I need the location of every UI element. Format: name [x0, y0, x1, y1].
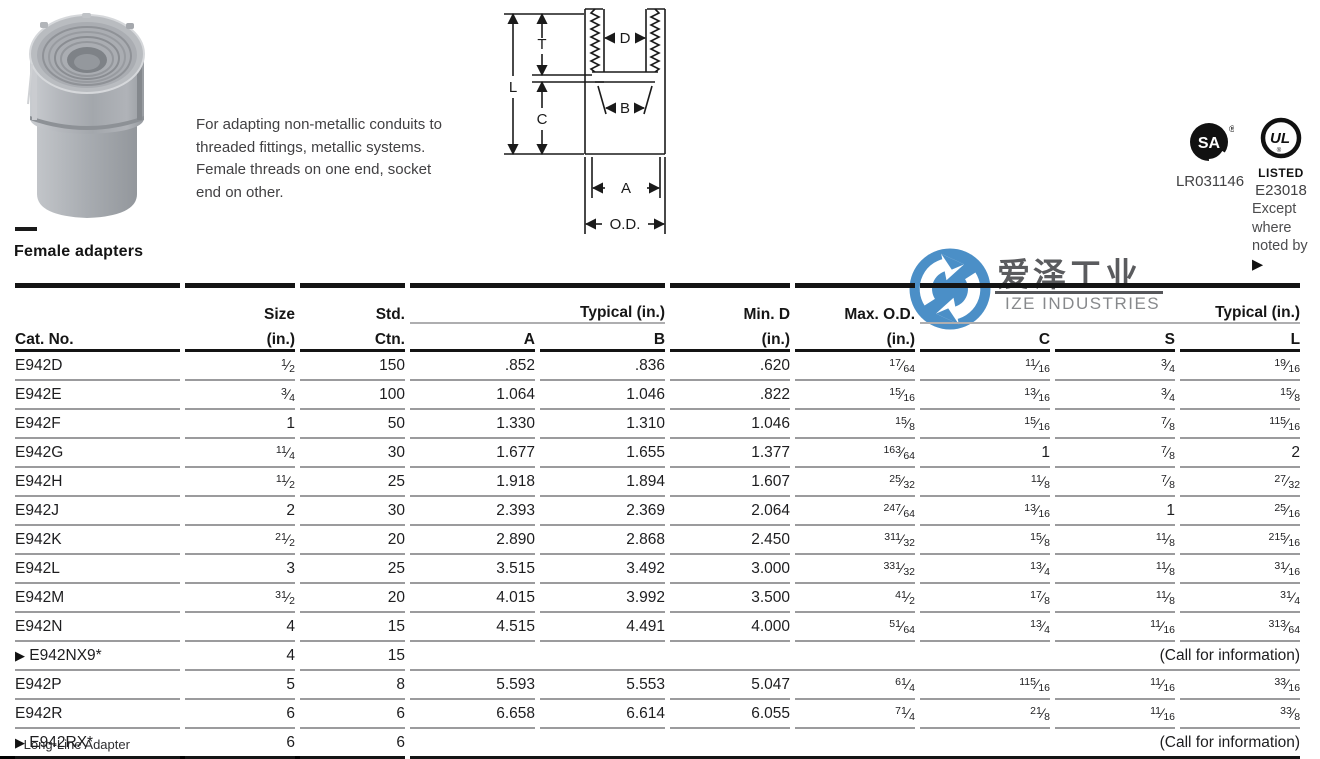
- table-cell: 2: [1180, 439, 1300, 468]
- table-cell: 3⁄4: [185, 381, 295, 410]
- table-cell: 31⁄4: [1180, 584, 1300, 613]
- header-size-unit: (in.): [185, 324, 295, 352]
- svg-text:®: ®: [1229, 124, 1234, 134]
- table-cell: 1.064: [410, 381, 535, 410]
- table-cell: 311⁄32: [795, 526, 915, 555]
- dimension-diagram: T L C D B A O.D.: [492, 2, 702, 259]
- table-row: E942F1501.3301.3101.04615⁄815⁄167⁄8115⁄1…: [15, 410, 1300, 439]
- long-line-marker-icon: ▶: [15, 648, 25, 663]
- table-cell: 6: [300, 729, 405, 759]
- ul-code: E23018: [1252, 182, 1310, 199]
- header-max-od-unit: (in.): [795, 324, 915, 352]
- table-cell: E942F: [15, 410, 180, 439]
- table-cell: 5.593: [410, 671, 535, 700]
- table-cell: E942E: [15, 381, 180, 410]
- table-cell: 71⁄4: [795, 700, 915, 729]
- table-cell: 3.500: [670, 584, 790, 613]
- table-cell: 163⁄64: [795, 439, 915, 468]
- table-cell: 19⁄16: [1180, 352, 1300, 381]
- table-cell: 15⁄8: [795, 410, 915, 439]
- ul-listed-label: LISTED: [1252, 166, 1310, 180]
- csa-icon: SA ®: [1186, 118, 1234, 166]
- header-size-top: Size: [185, 283, 295, 324]
- table-row: E942L3253.5153.4923.000331⁄3213⁄411⁄831⁄…: [15, 555, 1300, 584]
- table-cell: 2.890: [410, 526, 535, 555]
- table-cell: 41⁄2: [795, 584, 915, 613]
- table-cell: E942K: [15, 526, 180, 555]
- table-cell: 27⁄32: [1180, 468, 1300, 497]
- svg-text:UL: UL: [1270, 130, 1290, 147]
- svg-text:SA: SA: [1198, 135, 1221, 152]
- table-cell: 1.677: [410, 439, 535, 468]
- table-cell: 6.658: [410, 700, 535, 729]
- table-cell: 1.607: [670, 468, 790, 497]
- table-cell: 4.000: [670, 613, 790, 642]
- table-cell: 11⁄8: [1055, 584, 1175, 613]
- table-cell: .620: [670, 352, 790, 381]
- table-row: E942R666.6586.6146.05571⁄421⁄811⁄1633⁄8: [15, 700, 1300, 729]
- spec-table-body: E942D1⁄2150.852.836.62017⁄6411⁄163⁄419⁄1…: [15, 352, 1300, 759]
- table-cell: 3.000: [670, 555, 790, 584]
- csa-certification: SA ® LR031146: [1164, 118, 1256, 190]
- table-cell: E942D: [15, 352, 180, 381]
- table-row: E942P585.5935.5535.04761⁄4115⁄1611⁄1633⁄…: [15, 671, 1300, 700]
- table-cell: E942G: [15, 439, 180, 468]
- table-cell: 8: [300, 671, 405, 700]
- diagram-label-b: B: [620, 100, 630, 117]
- table-row: E942D1⁄2150.852.836.62017⁄6411⁄163⁄419⁄1…: [15, 352, 1300, 381]
- ul-certification: UL ® LISTED E23018: [1252, 116, 1310, 199]
- csa-code: LR031146: [1164, 173, 1256, 190]
- table-cell: 4: [185, 642, 295, 671]
- spec-table: Size Std. Typical (in.) Min. D Max. O.D.…: [10, 283, 1305, 759]
- long-line-marker-icon: ▶: [15, 735, 25, 750]
- table-cell: 5.553: [540, 671, 665, 700]
- table-cell: 1.330: [410, 410, 535, 439]
- table-cell: E942L: [15, 555, 180, 584]
- table-cell: 11⁄16: [920, 352, 1050, 381]
- table-row: ▶ E942NX9*415(Call for information): [15, 642, 1300, 671]
- table-cell: 30: [300, 439, 405, 468]
- diagram-label-d: D: [620, 30, 631, 47]
- table-cell: 15⁄8: [920, 526, 1050, 555]
- table-cell: 2.868: [540, 526, 665, 555]
- table-cell: 30: [300, 497, 405, 526]
- table-cell: 115⁄16: [920, 671, 1050, 700]
- table-cell: 11⁄16: [1055, 613, 1175, 642]
- table-cell: 1.046: [670, 410, 790, 439]
- table-cell: .822: [670, 381, 790, 410]
- diagram-label-od: O.D.: [610, 216, 641, 233]
- table-cell: 21⁄8: [920, 700, 1050, 729]
- table-cell: 4.015: [410, 584, 535, 613]
- table-cell: 11⁄16: [1055, 700, 1175, 729]
- table-cell: 2: [185, 497, 295, 526]
- table-cell: 1.918: [410, 468, 535, 497]
- table-row: E942E3⁄41001.0641.046.82215⁄1613⁄163⁄415…: [15, 381, 1300, 410]
- table-cell: 25: [300, 468, 405, 497]
- table-cell: E942R: [15, 700, 180, 729]
- table-cell: 1.894: [540, 468, 665, 497]
- header-cat-no: Cat. No.: [15, 324, 180, 352]
- table-cell: 20: [300, 584, 405, 613]
- table-cell: 1: [920, 439, 1050, 468]
- table-row: E942G11⁄4301.6771.6551.377163⁄6417⁄82: [15, 439, 1300, 468]
- table-row: ▶ E942RX*66(Call for information): [15, 729, 1300, 759]
- table-cell: 25⁄32: [795, 468, 915, 497]
- table-cell: 4.515: [410, 613, 535, 642]
- table-cell: 6.614: [540, 700, 665, 729]
- table-cell: 313⁄64: [1180, 613, 1300, 642]
- table-row: E942K21⁄2202.8902.8682.450311⁄3215⁄811⁄8…: [15, 526, 1300, 555]
- diagram-label-t: T: [537, 36, 546, 53]
- table-cell: 5: [185, 671, 295, 700]
- table-cell: 11⁄2: [185, 468, 295, 497]
- table-cell: 3⁄4: [1055, 352, 1175, 381]
- page-title: Female adapters: [14, 243, 143, 261]
- table-cell: .836: [540, 352, 665, 381]
- table-cell: 20: [300, 526, 405, 555]
- table-cell: 1.655: [540, 439, 665, 468]
- table-cell: 7⁄8: [1055, 410, 1175, 439]
- table-cell: ▶ E942RX*: [15, 729, 180, 759]
- table-row: E942J2302.3932.3692.064247⁄6413⁄16125⁄16: [15, 497, 1300, 526]
- table-cell: 2.369: [540, 497, 665, 526]
- table-cell: 6: [185, 729, 295, 759]
- table-cell: ▶ E942NX9*: [15, 642, 180, 671]
- table-cell: 1: [185, 410, 295, 439]
- table-row: E942H11⁄2251.9181.8941.60725⁄3211⁄87⁄827…: [15, 468, 1300, 497]
- table-cell: 3⁄4: [1055, 381, 1175, 410]
- header-min-d-top: Min. D: [670, 283, 790, 324]
- table-cell: (Call for information): [410, 729, 1300, 759]
- table-cell: 61⁄4: [795, 671, 915, 700]
- exception-note: Except where noted by ▶: [1252, 200, 1316, 274]
- table-cell: 17⁄64: [795, 352, 915, 381]
- header-typical-right: Typical (in.): [920, 283, 1300, 324]
- table-cell: 4: [185, 613, 295, 642]
- table-cell: 13⁄16: [920, 381, 1050, 410]
- product-description: For adapting non-metallic conduits to th…: [196, 114, 448, 204]
- table-cell: 31⁄2: [185, 584, 295, 613]
- table-cell: 1⁄2: [185, 352, 295, 381]
- table-cell: 11⁄16: [1055, 671, 1175, 700]
- table-cell: 150: [300, 352, 405, 381]
- header-col-a: A: [410, 324, 535, 352]
- table-row: E942N4154.5154.4914.00051⁄6413⁄411⁄16313…: [15, 613, 1300, 642]
- table-cell: 3.515: [410, 555, 535, 584]
- table-cell: 6: [300, 700, 405, 729]
- diagram-label-c: C: [537, 111, 548, 128]
- header-typical-left: Typical (in.): [410, 283, 665, 324]
- table-cell: 15⁄16: [795, 381, 915, 410]
- table-cell: 4.491: [540, 613, 665, 642]
- table-cell: 3.492: [540, 555, 665, 584]
- header-min-d-unit: (in.): [670, 324, 790, 352]
- table-cell: 33⁄16: [1180, 671, 1300, 700]
- table-cell: E942H: [15, 468, 180, 497]
- header-col-c: C: [920, 324, 1050, 352]
- table-cell: 11⁄8: [920, 468, 1050, 497]
- header-col-s: S: [1055, 324, 1175, 352]
- exception-marker-icon: ▶: [1252, 257, 1263, 273]
- table-cell: 247⁄64: [795, 497, 915, 526]
- header-col-l: L: [1180, 324, 1300, 352]
- diagram-label-l: L: [509, 79, 517, 96]
- table-cell: 2.064: [670, 497, 790, 526]
- table-cell: 31⁄16: [1180, 555, 1300, 584]
- table-cell: 11⁄8: [1055, 526, 1175, 555]
- table-cell: 21⁄2: [185, 526, 295, 555]
- table-cell: .852: [410, 352, 535, 381]
- table-cell: 331⁄32: [795, 555, 915, 584]
- product-photo: [12, 4, 162, 235]
- table-cell: 215⁄16: [1180, 526, 1300, 555]
- table-cell: 15⁄8: [1180, 381, 1300, 410]
- diagram-label-a: A: [621, 180, 631, 197]
- table-cell: 1.377: [670, 439, 790, 468]
- table-cell: 100: [300, 381, 405, 410]
- table-cell: 25: [300, 555, 405, 584]
- table-cell: 13⁄16: [920, 497, 1050, 526]
- table-cell: 2.450: [670, 526, 790, 555]
- table-cell: 3.992: [540, 584, 665, 613]
- table-cell: 15⁄16: [920, 410, 1050, 439]
- table-cell: 115⁄16: [1180, 410, 1300, 439]
- table-cell: 13⁄4: [920, 613, 1050, 642]
- header-col-b: B: [540, 324, 665, 352]
- table-cell: 51⁄64: [795, 613, 915, 642]
- table-cell: 1.046: [540, 381, 665, 410]
- table-cell: E942P: [15, 671, 180, 700]
- table-row: E942M31⁄2204.0153.9923.50041⁄217⁄811⁄831…: [15, 584, 1300, 613]
- header-spacer: [15, 283, 180, 324]
- table-cell: 5.047: [670, 671, 790, 700]
- table-cell: 7⁄8: [1055, 468, 1175, 497]
- ul-icon: UL ®: [1259, 116, 1303, 160]
- table-cell: 1: [1055, 497, 1175, 526]
- table-cell: E942N: [15, 613, 180, 642]
- table-cell: 13⁄4: [920, 555, 1050, 584]
- table-cell: 6: [185, 700, 295, 729]
- header-max-od-top: Max. O.D.: [795, 283, 915, 324]
- svg-text:®: ®: [1277, 147, 1282, 154]
- table-cell: 1.310: [540, 410, 665, 439]
- table-cell: E942M: [15, 584, 180, 613]
- table-cell: 3: [185, 555, 295, 584]
- table-cell: 6.055: [670, 700, 790, 729]
- table-cell: 15: [300, 613, 405, 642]
- table-cell: 33⁄8: [1180, 700, 1300, 729]
- table-cell: 2.393: [410, 497, 535, 526]
- table-cell: (Call for information): [410, 642, 1300, 671]
- table-cell: 17⁄8: [920, 584, 1050, 613]
- table-cell: 25⁄16: [1180, 497, 1300, 526]
- table-cell: 11⁄4: [185, 439, 295, 468]
- header-std-top: Std.: [300, 283, 405, 324]
- table-cell: 7⁄8: [1055, 439, 1175, 468]
- table-cell: 50: [300, 410, 405, 439]
- header-std-ctn: Ctn.: [300, 324, 405, 352]
- table-cell: 11⁄8: [1055, 555, 1175, 584]
- table-cell: E942J: [15, 497, 180, 526]
- table-cell: 15: [300, 642, 405, 671]
